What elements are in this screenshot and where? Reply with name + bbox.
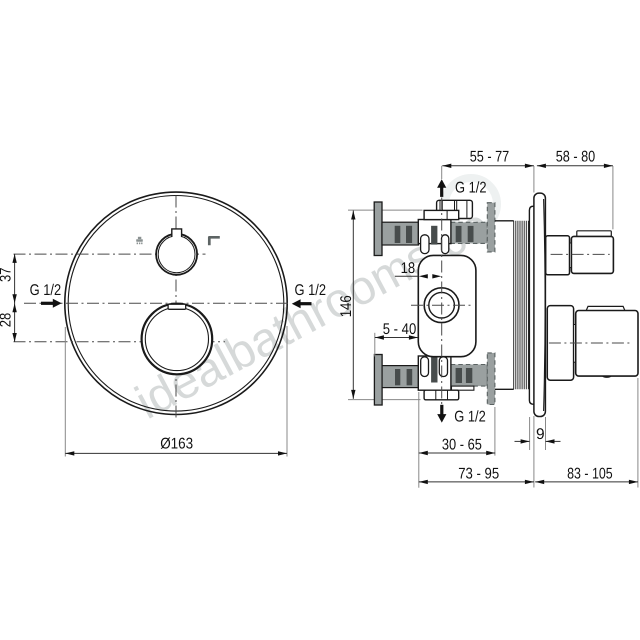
svg-text:58 - 80: 58 - 80 bbox=[556, 148, 596, 165]
svg-text:Ø163: Ø163 bbox=[160, 436, 193, 453]
svg-text:30 - 65: 30 - 65 bbox=[442, 437, 482, 454]
svg-text:G 1/2: G 1/2 bbox=[455, 179, 487, 196]
svg-text:5 - 40: 5 - 40 bbox=[383, 321, 417, 338]
svg-text:G 1/2: G 1/2 bbox=[454, 409, 486, 426]
svg-text:G 1/2: G 1/2 bbox=[295, 282, 327, 299]
svg-text:9: 9 bbox=[536, 426, 545, 443]
svg-text:83 - 105: 83 - 105 bbox=[567, 465, 613, 482]
svg-text:55 - 77: 55 - 77 bbox=[470, 148, 510, 165]
svg-text:146: 146 bbox=[338, 295, 355, 317]
svg-text:37: 37 bbox=[0, 268, 15, 283]
svg-text:28: 28 bbox=[0, 313, 15, 328]
svg-text:18: 18 bbox=[401, 260, 416, 277]
svg-text:73 - 95: 73 - 95 bbox=[458, 465, 499, 482]
svg-text:G 1/2: G 1/2 bbox=[30, 282, 62, 299]
